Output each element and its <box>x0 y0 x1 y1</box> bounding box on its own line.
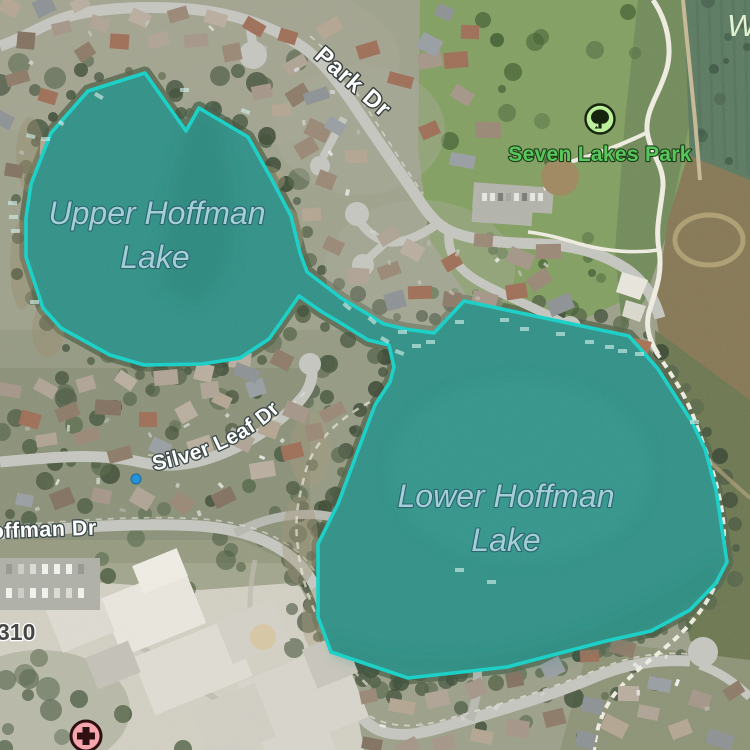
svg-text:offman Dr: offman Dr <box>0 516 97 544</box>
svg-text:Lake: Lake <box>120 239 189 275</box>
svg-text:Upper Hoffman: Upper Hoffman <box>49 195 266 231</box>
svg-text:Seven Lakes Park: Seven Lakes Park <box>508 143 691 166</box>
svg-text:Lake: Lake <box>471 522 540 558</box>
svg-text:W: W <box>727 8 750 43</box>
svg-text:310: 310 <box>0 619 35 645</box>
svg-text:Lower Hoffman: Lower Hoffman <box>398 478 615 514</box>
